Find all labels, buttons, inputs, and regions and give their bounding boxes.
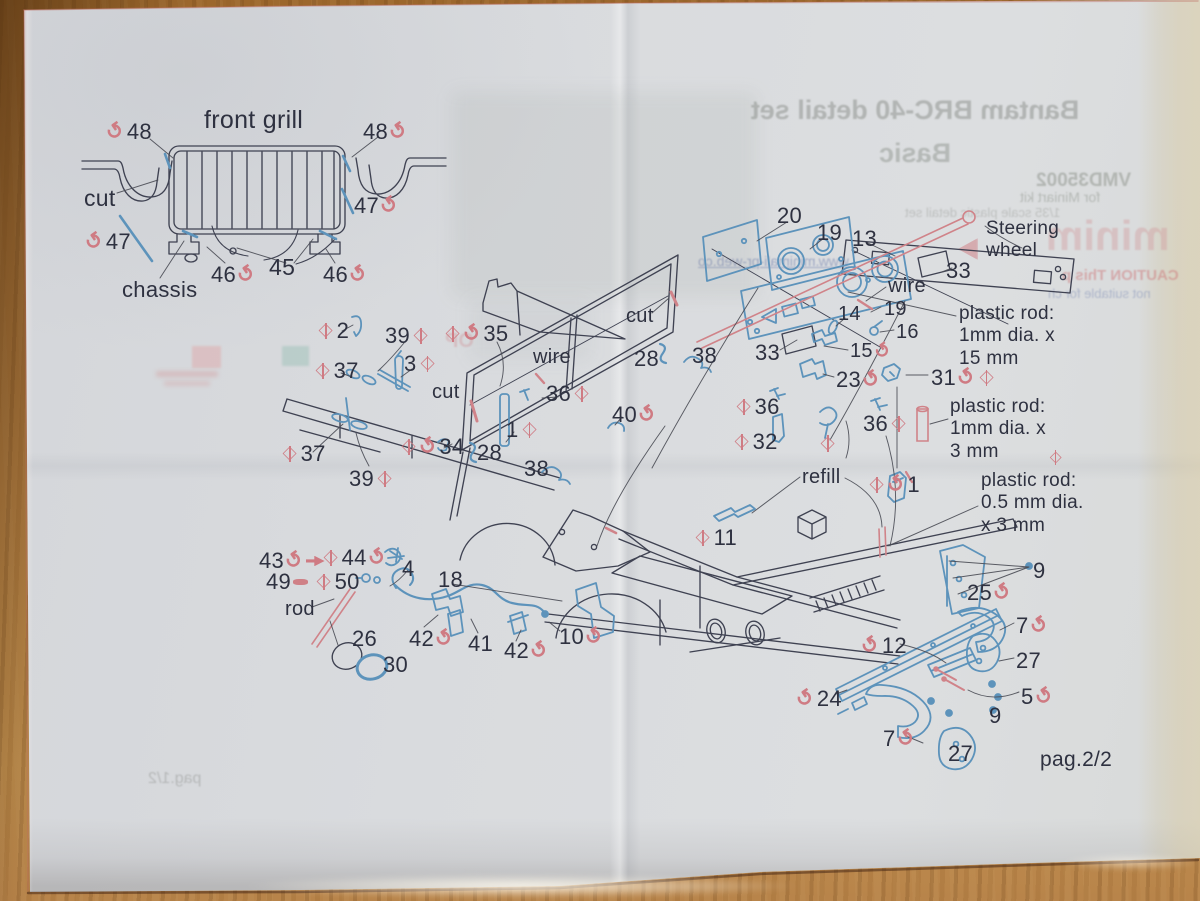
diagram-label-49: 49: [266, 569, 308, 595]
drill-diamond-icon: [414, 329, 427, 342]
diagram-label-15: 15↺: [850, 340, 891, 364]
label-text: 20: [777, 203, 802, 229]
drill-diamond-icon: [980, 371, 993, 384]
label-text: 48: [363, 119, 388, 145]
bend-arrow-icon: ↺: [432, 625, 459, 652]
bend-arrow-icon: ↺: [459, 320, 486, 347]
diagram-label-cut: cut: [432, 381, 460, 405]
label-text: 42: [504, 638, 529, 664]
label-text: 7: [1016, 613, 1029, 639]
label-text: cut: [626, 305, 654, 329]
diagram-label-refill: refill: [802, 466, 840, 490]
label-text: 2: [337, 318, 350, 344]
label-text: 27: [948, 741, 973, 767]
label-text: 30: [383, 652, 408, 678]
label-text: 14: [838, 303, 861, 327]
diagram-label-7: 7↺: [883, 726, 915, 752]
bend-arrow-icon: ↺: [103, 118, 130, 145]
diagram-label-47: 47↺: [354, 193, 399, 219]
label-text: 44: [342, 545, 367, 571]
label-text: 34: [439, 434, 464, 460]
diagram-label-27: 27: [1016, 648, 1041, 674]
wood-glare-highlight-2: [1060, 854, 1200, 870]
label-text: 47: [106, 229, 131, 255]
label-text: 36: [546, 381, 571, 407]
label-text: 24: [817, 686, 842, 712]
label-text: Steering wheel: [986, 218, 1059, 263]
diagram-label-28: 28: [477, 440, 502, 466]
label-text: 46: [211, 262, 236, 288]
instruction-sheet-photo: Bantam BRC-40 detail setBasicVMD35002for…: [0, 0, 1200, 901]
label-text: 9: [989, 703, 1002, 729]
label-text: 9: [1033, 558, 1046, 584]
diagram-label-4: 4: [402, 556, 415, 582]
page-number: pag.2/2: [1040, 748, 1112, 773]
diagram-label-26: 26: [352, 626, 377, 652]
bend-arrow-icon: ↺: [234, 261, 261, 288]
drill-diamond-icon: [1050, 452, 1061, 463]
note-plastic-rod-1x15: plastic rod: 1mm dia. x 15 mm: [959, 303, 1055, 370]
label-text: 28: [634, 346, 659, 372]
diagram-label-19: 19: [884, 298, 907, 322]
bend-arrow-icon: ↺: [793, 685, 820, 712]
diagram-label-18: 18: [438, 567, 463, 593]
diagram-label-39: 39: [349, 466, 394, 492]
diagram-label-11: 11: [694, 525, 737, 551]
diagram-label-32: 32: [733, 429, 778, 455]
bend-arrow-icon: ↺: [1026, 612, 1053, 639]
label-text: 11: [714, 525, 737, 551]
label-text: chassis: [122, 277, 197, 303]
diagram-label-33: 33: [755, 340, 780, 366]
note-plastic-rod-1x3: plastic rod: 1mm dia. x 3 mm: [950, 396, 1063, 463]
label-text: plastic rod: 1mm dia. x 3 mm: [950, 396, 1046, 463]
label-text: 48: [127, 119, 152, 145]
bend-arrow-icon: ↺: [858, 632, 885, 659]
diagram-label-20: 20: [777, 203, 802, 229]
bend-arrow-icon: ↺: [346, 261, 373, 288]
diagram-label-37: 37: [314, 358, 359, 384]
diagram-label-40: 40↺: [612, 402, 657, 428]
diagram-label-rod: rod: [285, 598, 315, 622]
drill-diamond-icon: [316, 364, 329, 377]
label-text: 36: [755, 394, 780, 420]
bend-arrow-icon: ↺: [364, 544, 391, 571]
label-text: 39: [385, 323, 410, 349]
label-text: 35: [483, 321, 508, 347]
diagram-label-19: 19: [817, 220, 842, 246]
diagram-label-33: 33: [946, 258, 971, 284]
diagram-label-45: 45: [269, 254, 295, 281]
diagram-label-48: 48↺: [363, 119, 408, 145]
label-text: 38: [524, 456, 549, 482]
label-text: plastic rod: 1mm dia. x 15 mm: [959, 303, 1055, 370]
label-text: wire: [533, 346, 571, 370]
diagram-label-27: 27: [948, 741, 973, 767]
label-text: 7: [883, 726, 896, 752]
label-text: 28: [477, 440, 502, 466]
drill-diamond-icon: [324, 551, 337, 564]
diagram-label-cut: cut: [626, 305, 654, 329]
label-text: 45: [269, 254, 295, 281]
label-text: wire: [888, 275, 926, 299]
diagram-label-9: 9: [989, 703, 1002, 729]
diagram-label-24: ↺24: [797, 686, 842, 712]
diagram-label-14: 14: [838, 303, 861, 327]
bend-arrow-icon: ↺: [1031, 683, 1058, 710]
label-text: 3: [404, 351, 417, 377]
drill-diamond-icon: [870, 478, 883, 491]
drill-diamond-icon: [696, 531, 709, 544]
diagram-label-36: 36: [863, 411, 908, 437]
label-text: 33: [946, 258, 971, 284]
label-text: 4: [402, 556, 415, 582]
drill-diamond-icon: [523, 423, 536, 436]
drill-diamond-icon: [378, 472, 391, 485]
drill-diamond-icon: [575, 387, 588, 400]
label-text: 33: [755, 340, 780, 366]
diagram-label-37: 37: [281, 441, 326, 467]
label-text: 49: [266, 569, 291, 595]
diagram-label-23: 23↺: [836, 367, 881, 393]
diagram-label-3: 3: [404, 351, 436, 377]
diagram-label-12: ↺12: [862, 633, 907, 659]
label-text: 37: [334, 358, 359, 384]
diagram-label-46: 46↺: [211, 262, 256, 288]
diagram-label-chassis: chassis: [122, 277, 197, 303]
diagram-label-38: 38: [692, 343, 717, 369]
label-text: 10: [559, 624, 584, 650]
bend-arrow-icon: ↺: [859, 366, 886, 393]
label-text: 42: [409, 626, 434, 652]
diagram-label-wire: wire: [888, 275, 926, 299]
label-text: plastic rod: 0.5 mm dia. x 3 mm: [981, 470, 1084, 537]
wood-glare-highlight: [240, 874, 800, 898]
note-steering-wheel: Steering wheel: [986, 218, 1059, 263]
diagram-label-44: 44↺: [322, 545, 386, 571]
bend-arrow-icon: ↺: [990, 579, 1017, 606]
label-text: 19: [817, 220, 842, 246]
drill-diamond-icon: [821, 437, 834, 450]
drill-diamond-icon: [735, 435, 748, 448]
label-text: 16: [896, 321, 919, 345]
label-text: refill: [802, 466, 840, 490]
label-text: cut: [84, 185, 116, 212]
diagram-label-wire: wire: [533, 346, 571, 370]
label-text: 19: [884, 298, 907, 322]
diagram-label-9: 9: [1033, 558, 1046, 584]
label-text: 1: [907, 472, 920, 498]
label-text: 23: [836, 367, 861, 393]
diagram-label-symbol: [819, 437, 837, 450]
bend-arrow-icon: ↺: [893, 725, 920, 752]
diagram-label-cut: cut: [84, 185, 116, 212]
diagram-label-35: ↺35: [444, 321, 508, 347]
bend-arrow-icon: ↺: [954, 364, 981, 391]
label-text: 38: [692, 343, 717, 369]
diagram-label-16: 16: [896, 321, 919, 345]
label-text: 41: [468, 631, 493, 657]
diagram-label-1: ↺1: [868, 472, 920, 498]
drill-diamond-icon: [892, 417, 905, 430]
label-text: front grill: [204, 106, 303, 136]
diagram-label-30: 30: [383, 652, 408, 678]
diagram-label-41: 41: [468, 631, 493, 657]
drill-diamond-icon: [421, 357, 434, 370]
label-text: 13: [852, 226, 877, 252]
diagram-label-13: 13: [852, 226, 877, 252]
diagram-label-7: 7↺: [1016, 613, 1048, 639]
diagram-label-46: 46↺: [323, 262, 368, 288]
diagram-label-42: 42↺: [409, 626, 454, 652]
label-text: pag.2/2: [1040, 748, 1112, 773]
diagram-label-34: ↺34: [400, 434, 464, 460]
diagram-label-48: ↺48: [107, 119, 152, 145]
label-text: 39: [349, 466, 374, 492]
diagram-label-47: ↺47: [86, 229, 131, 255]
label-text: 36: [863, 411, 888, 437]
diagram-label-38: 38: [524, 456, 549, 482]
diagram-label-1: 1: [506, 417, 538, 443]
diagram-label-50: 50: [315, 569, 360, 595]
bend-arrow-icon: ↺: [582, 623, 609, 650]
label-text: 27: [1016, 648, 1041, 674]
diagram-label-2: 2: [317, 318, 349, 344]
label-text: 46: [323, 262, 348, 288]
bend-arrow-icon: ↺: [82, 228, 109, 255]
diagram-label-5: 5↺: [1021, 684, 1053, 710]
label-text: 5: [1021, 684, 1034, 710]
drill-diamond-icon: [402, 440, 415, 453]
label-text: cut: [432, 381, 460, 405]
bend-arrow-icon: ↺: [883, 471, 910, 498]
label-text: rod: [285, 598, 315, 622]
label-text: 31: [931, 365, 956, 391]
bend-arrow-icon: ↺: [527, 637, 554, 664]
label-layer: front grill↺4848↺cut47↺↺47chassis46↺4546…: [0, 0, 1200, 901]
diagram-label-31: 31↺: [931, 365, 995, 391]
label-text: 15: [850, 340, 873, 364]
bend-arrow-icon: ↺: [377, 192, 404, 219]
drill-diamond-icon: [283, 447, 296, 460]
label-text: 40: [612, 402, 637, 428]
bend-arrow-icon: ↺: [386, 118, 413, 145]
label-text: 1: [506, 417, 519, 443]
diagram-label-36: 36: [735, 394, 780, 420]
bend-arrow-icon: ↺: [635, 401, 662, 428]
diagram-label-36: 36: [546, 381, 591, 407]
label-text: 18: [438, 567, 463, 593]
drill-diamond-icon: [317, 575, 330, 588]
label-text: 37: [301, 441, 326, 467]
drill-diamond-icon: [737, 400, 750, 413]
bend-arrow-icon: ↺: [415, 433, 442, 460]
label-text: 12: [882, 633, 907, 659]
rod-pin-icon: [293, 579, 308, 585]
diagram-label-28: 28: [634, 346, 659, 372]
drill-diamond-icon: [319, 324, 332, 337]
label-text: 50: [335, 569, 360, 595]
diagram-label-10: 10↺: [559, 624, 604, 650]
bend-arrow-icon: ↺: [871, 339, 895, 364]
note-plastic-rod-05x3: plastic rod: 0.5 mm dia. x 3 mm: [981, 470, 1084, 537]
label-text: 47: [354, 193, 379, 219]
label-text: 25: [967, 580, 992, 606]
label-text: 32: [753, 429, 778, 455]
diagram-label-25: 25↺: [967, 580, 1012, 606]
label-text: 26: [352, 626, 377, 652]
title-front-grill: front grill: [204, 106, 303, 136]
diagram-label-39: 39: [385, 323, 430, 349]
drill-diamond-icon: [446, 327, 459, 340]
diagram-label-42: 42↺: [504, 638, 549, 664]
